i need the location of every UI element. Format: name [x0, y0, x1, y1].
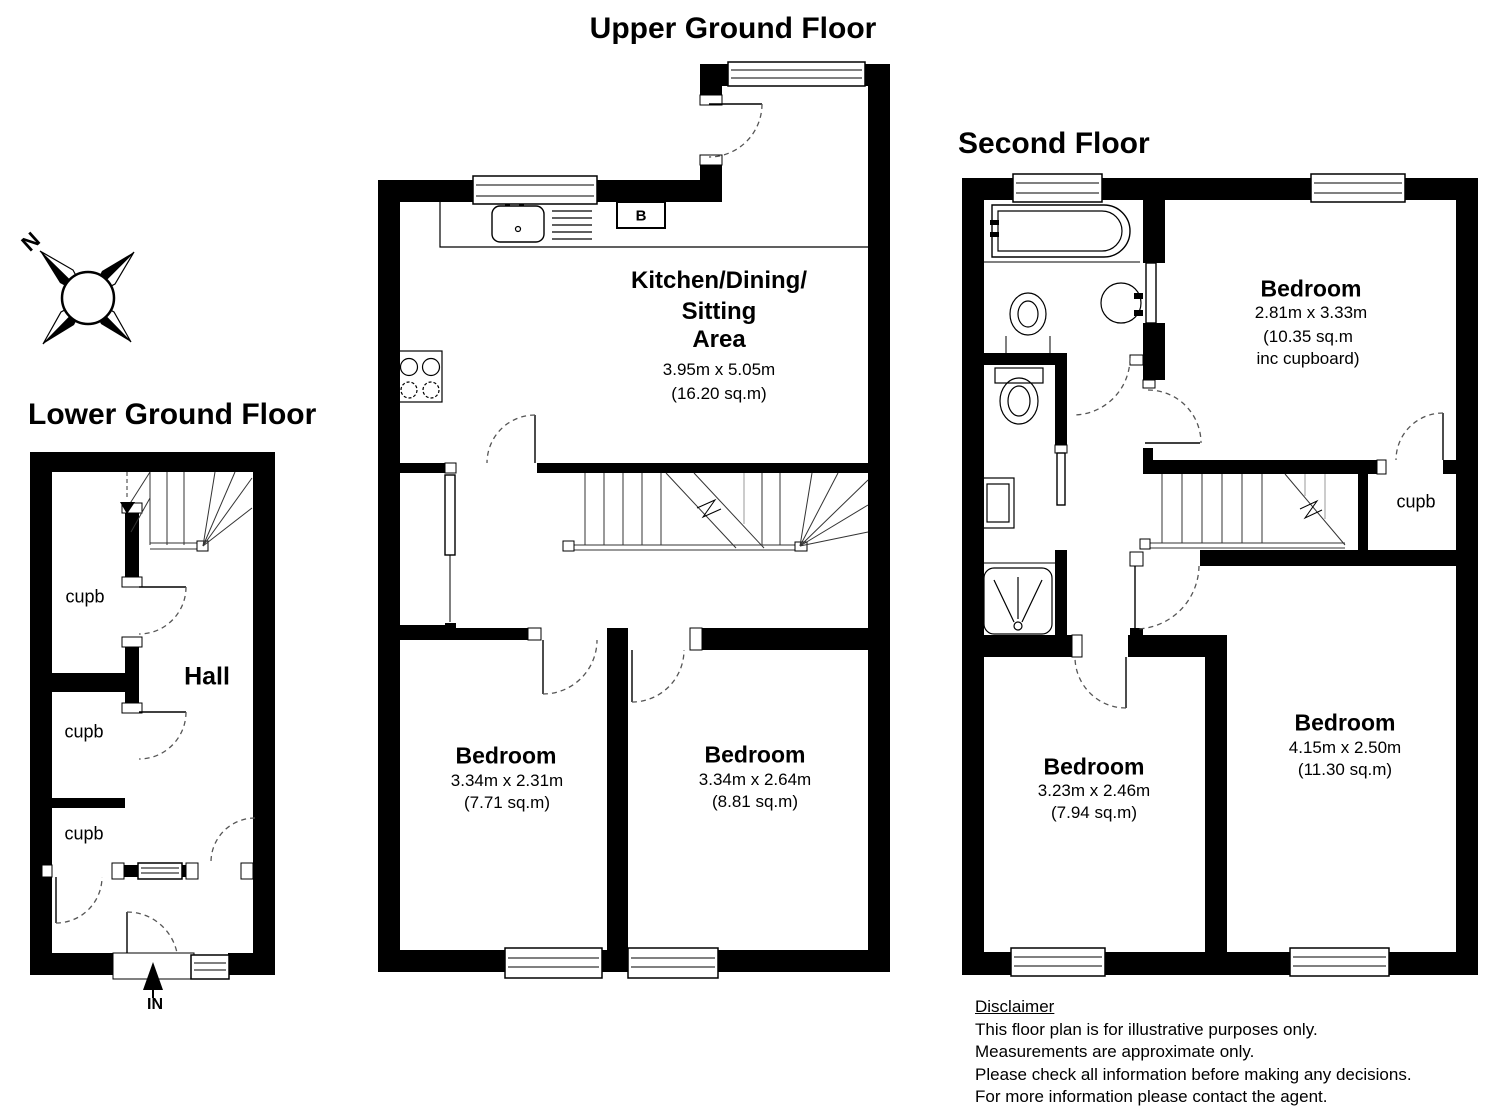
second-jambs — [1055, 355, 1386, 657]
upper-bedroom-left-name: Bedroom — [456, 743, 557, 770]
boiler-label: B — [636, 208, 647, 225]
second-bedroom-bl-dims: 3.23m x 2.46m — [1038, 781, 1150, 801]
shower-icon — [984, 568, 1052, 634]
second-bedroom-br-name: Bedroom — [1295, 710, 1396, 737]
disclaimer-line-1: This floor plan is for illustrative purp… — [975, 1019, 1412, 1042]
second-bedroom-top-dims: 2.81m x 3.33m — [1255, 303, 1367, 323]
compass-circle — [62, 272, 114, 324]
second-bedroom-br-area: (11.30 sq.m) — [1298, 760, 1392, 780]
kitchen-label-line2: Sitting — [682, 298, 757, 326]
second-bedroom-bl-name: Bedroom — [1044, 754, 1145, 781]
hob-icon — [396, 351, 442, 402]
second-doors — [1057, 263, 1443, 708]
disclaimer-heading: Disclaimer — [975, 996, 1412, 1019]
upper-ground-floor-plan — [375, 60, 895, 990]
upper-staircase — [563, 473, 868, 551]
kitchen-sink-icon — [492, 206, 544, 242]
bedroom-left-window — [505, 948, 602, 978]
upper-bedroom-left-dims: 3.34m x 2.31m — [451, 771, 563, 791]
drainer-lines — [552, 211, 592, 239]
lower-hatch-window — [138, 863, 182, 879]
toilet-icon — [1006, 293, 1050, 356]
second-bedroom-bl-area: (7.94 sq.m) — [1051, 803, 1137, 823]
upper-bedroom-right-dims: 3.34m x 2.64m — [699, 770, 811, 790]
lower-ground-title: Lower Ground Floor — [28, 398, 316, 432]
cupboard-label-1: cupb — [65, 587, 104, 608]
kitchen-dims: 3.95m x 5.05m — [663, 360, 775, 380]
second-bedroom-top-area2: inc cupboard) — [1256, 349, 1359, 369]
bedroom-bottom-right-window — [1290, 948, 1389, 976]
disclaimer-block: Disclaimer This floor plan is for illust… — [975, 996, 1412, 1109]
bay-window — [728, 62, 865, 86]
lower-bottom-window — [191, 955, 229, 979]
cupboard-label-2: cupb — [64, 722, 103, 743]
wc-toilet-icon — [995, 368, 1043, 424]
kitchen-window — [473, 176, 597, 204]
second-floor-plan — [955, 170, 1485, 990]
disclaimer-line-2: Measurements are approximate only. — [975, 1041, 1412, 1064]
lower-doors — [56, 587, 255, 963]
upper-bedroom-left-area: (7.71 sq.m) — [464, 793, 550, 813]
lower-walls — [30, 452, 275, 975]
hall-label: Hall — [184, 663, 230, 692]
basin-icon — [1101, 283, 1143, 323]
second-bedroom-br-dims: 4.15m x 2.50m — [1289, 738, 1401, 758]
cupboard-label-3: cupb — [64, 824, 103, 845]
kitchen-area: (16.20 sq.m) — [671, 384, 766, 404]
upper-bedroom-right-name: Bedroom — [705, 742, 806, 769]
second-bedroom-top-name: Bedroom — [1261, 276, 1362, 303]
bedroom-top-window — [1311, 174, 1405, 202]
floorplan-page: N — [0, 0, 1500, 1120]
upper-bedroom-right-area: (8.81 sq.m) — [712, 792, 798, 812]
second-bedroom-top-area1: (10.35 sq.m — [1263, 327, 1353, 347]
bedroom-bottom-left-window — [1011, 948, 1105, 976]
disclaimer-line-4: For more information please contact the … — [975, 1086, 1412, 1109]
bathroom-window — [1013, 174, 1102, 202]
second-floor-title: Second Floor — [958, 127, 1150, 161]
upper-ground-title: Upper Ground Floor — [590, 12, 877, 46]
second-staircase — [1140, 474, 1345, 549]
kitchen-label-line3: Area — [692, 326, 745, 354]
bedroom-right-window — [628, 948, 718, 978]
entrance-in-label: IN — [147, 996, 163, 1014]
kitchen-label-line1: Kitchen/Dining/ — [631, 267, 807, 295]
second-cupboard-label: cupb — [1396, 492, 1435, 513]
disclaimer-line-3: Please check all information before maki… — [975, 1064, 1412, 1087]
